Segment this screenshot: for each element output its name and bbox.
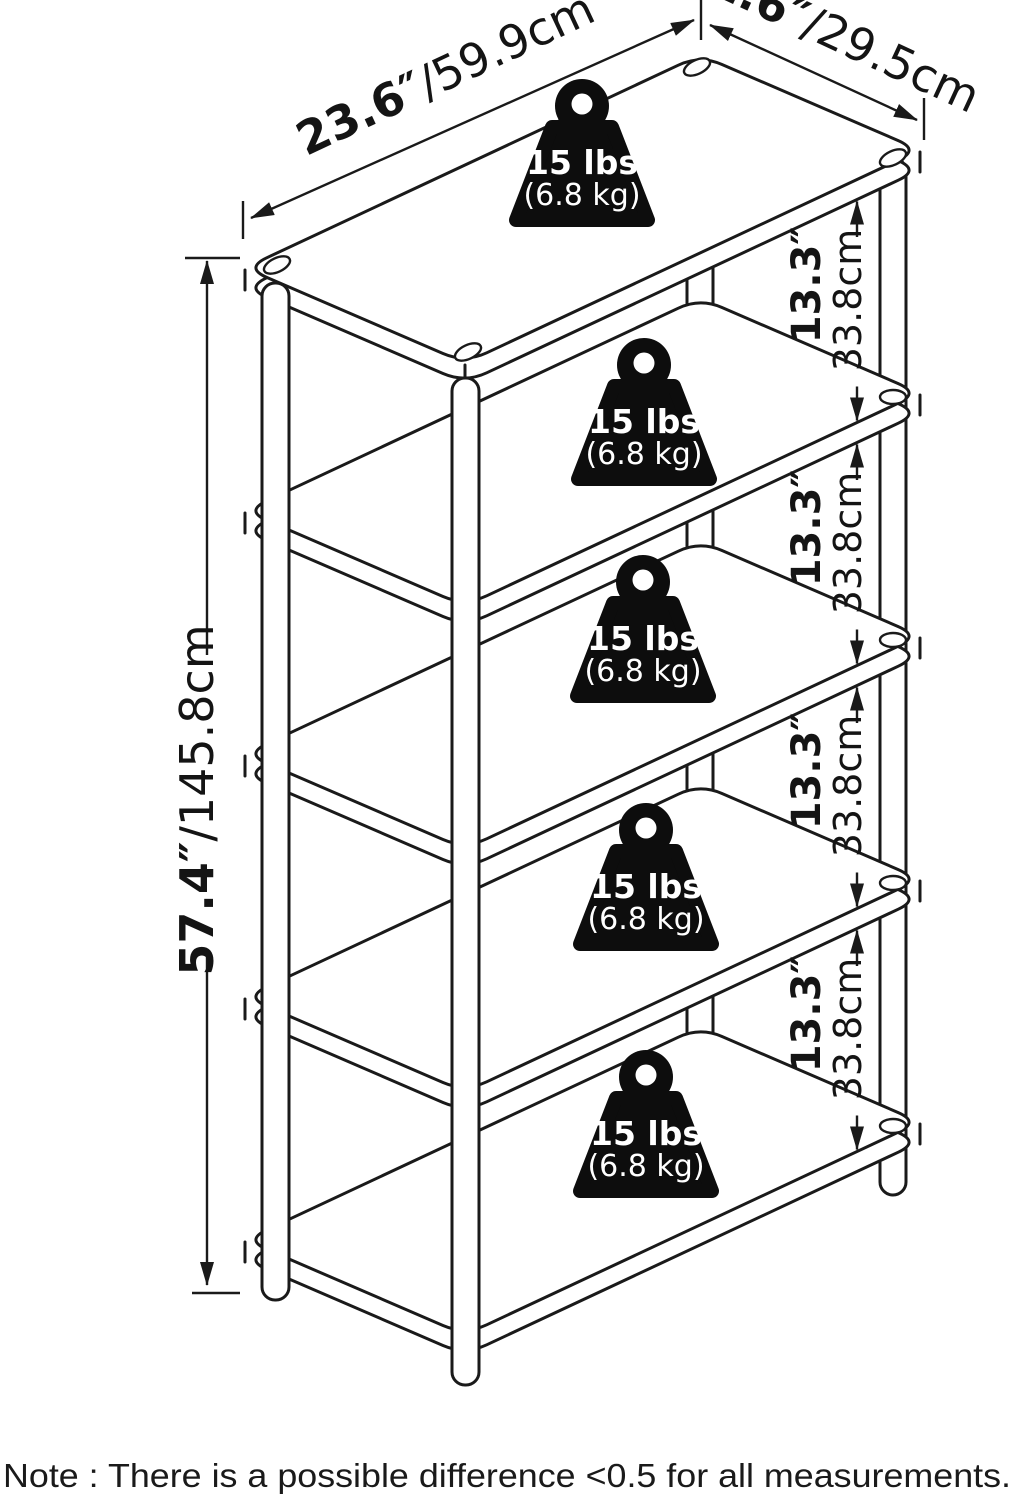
front-leg-tube (452, 378, 479, 1385)
spacing-inches-label: 13.3″ (784, 470, 830, 587)
weight-kg-label: (6.8 kg) (584, 654, 701, 689)
spacing-cm-label: 33.8cm (826, 715, 870, 858)
dimension-diagram-page: 23.6″/59.9cm 11.6″/29.5cm 57.4″/145.8cm … (0, 0, 1014, 1500)
weight-kg-label: (6.8 kg) (523, 178, 640, 213)
spacing-inches-label: 13.3″ (784, 713, 830, 830)
weight-lbs-label: 15 lbs (587, 619, 699, 658)
spacing-cm-label: 33.8cm (826, 472, 870, 615)
weight-kg-label: (6.8 kg) (585, 437, 702, 472)
height-dimension: 57.4″/145.8cm (170, 258, 240, 1293)
left-leg-tube (262, 283, 289, 1300)
spacing-inches-label: 13.3″ (784, 956, 830, 1073)
spacing-inches-label: 13.3″ (784, 227, 830, 344)
height-dimension-label: 57.4″/145.8cm (170, 624, 224, 975)
weight-kg-label: (6.8 kg) (587, 902, 704, 937)
spacing-cm-label: 33.8cm (826, 229, 870, 372)
weight-kg-label: (6.8 kg) (587, 1149, 704, 1184)
measurement-note: Note : There is a possible difference <0… (3, 1457, 1011, 1494)
weight-lbs-label: 15 lbs (588, 402, 700, 441)
spacing-cm-label: 33.8cm (826, 958, 870, 1101)
shelf-dimension-diagram: 23.6″/59.9cm 11.6″/29.5cm 57.4″/145.8cm … (0, 0, 1014, 1500)
weight-lbs-label: 15 lbs (590, 1114, 702, 1153)
weight-lbs-label: 15 lbs (590, 867, 702, 906)
weight-lbs-label: 15 lbs (526, 143, 638, 182)
right-leg-tube (880, 158, 906, 1195)
